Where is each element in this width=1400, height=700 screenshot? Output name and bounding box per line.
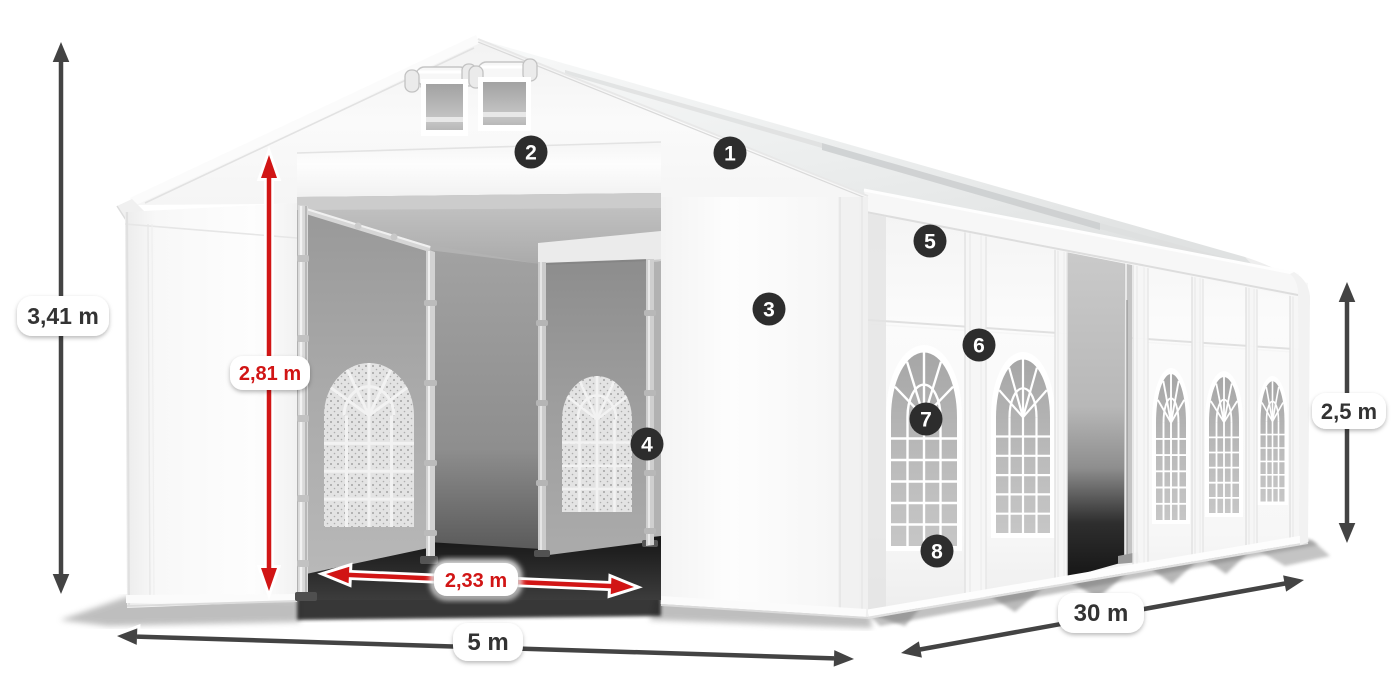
svg-text:5: 5 [924,231,936,254]
svg-text:7: 7 [920,409,932,432]
svg-text:2,5 m: 2,5 m [1321,399,1377,424]
svg-text:30 m: 30 m [1074,600,1129,627]
svg-text:2,33 m: 2,33 m [445,570,507,592]
svg-text:2: 2 [525,142,537,165]
svg-text:8: 8 [931,541,943,564]
svg-text:4: 4 [641,434,653,457]
svg-text:1: 1 [724,143,736,166]
svg-text:5 m: 5 m [467,629,508,656]
svg-text:6: 6 [973,335,985,358]
svg-text:3: 3 [763,299,775,322]
svg-text:2,81 m: 2,81 m [239,363,301,385]
svg-text:3,41 m: 3,41 m [27,303,99,329]
